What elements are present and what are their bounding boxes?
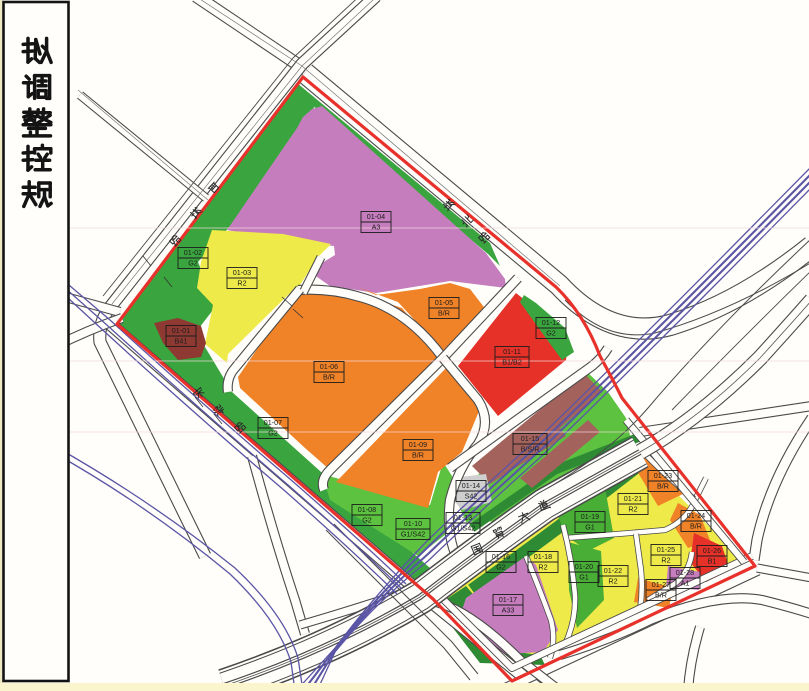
svg-text:01-14: 01-14: [462, 481, 480, 490]
svg-text:01-12: 01-12: [542, 318, 560, 327]
svg-text:B/R: B/R: [690, 522, 702, 531]
svg-text:G2: G2: [268, 429, 278, 438]
svg-text:B/R: B/R: [655, 591, 667, 600]
svg-text:01-17: 01-17: [499, 595, 517, 604]
svg-text:01-01: 01-01: [172, 326, 190, 335]
svg-text:01-07: 01-07: [264, 418, 282, 427]
svg-text:G2: G2: [188, 259, 198, 268]
svg-text:01-22: 01-22: [604, 566, 622, 575]
svg-text:01-02: 01-02: [184, 248, 202, 257]
svg-text:01-15: 01-15: [521, 434, 539, 443]
svg-text:01-19: 01-19: [581, 512, 599, 521]
svg-text:B1/B2: B1/B2: [502, 358, 522, 367]
svg-text:B/R: B/R: [323, 373, 335, 382]
svg-text:01-25: 01-25: [657, 545, 675, 554]
svg-text:01-08: 01-08: [358, 505, 376, 514]
svg-text:01-27: 01-27: [652, 580, 670, 589]
svg-text:01-04: 01-04: [367, 212, 385, 221]
svg-text:01-20: 01-20: [575, 562, 593, 571]
svg-text:01-28: 01-28: [676, 568, 694, 577]
svg-text:R2: R2: [538, 563, 547, 572]
svg-text:01-11: 01-11: [503, 347, 521, 356]
svg-text:G1/S42: G1/S42: [401, 530, 425, 539]
svg-text:B/R: B/R: [412, 451, 424, 460]
svg-text:B/S/R: B/S/R: [521, 445, 540, 454]
svg-text:G1/S42: G1/S42: [451, 524, 475, 533]
svg-text:01-18: 01-18: [534, 552, 552, 561]
svg-text:G2: G2: [546, 329, 556, 338]
svg-text:G2: G2: [362, 516, 372, 525]
svg-text:R2: R2: [628, 505, 637, 514]
svg-text:A3: A3: [372, 223, 381, 232]
svg-text:G1: G1: [585, 523, 595, 532]
svg-text:B41: B41: [175, 337, 188, 346]
svg-text:01-26: 01-26: [703, 546, 721, 555]
svg-text:B1: B1: [708, 557, 717, 566]
svg-text:G2: G2: [496, 563, 506, 572]
svg-text:01-13: 01-13: [454, 513, 472, 522]
svg-text:01-09: 01-09: [409, 440, 427, 449]
svg-text:G1: G1: [579, 573, 589, 582]
svg-text:01-03: 01-03: [233, 268, 251, 277]
svg-text:01-21: 01-21: [624, 494, 642, 503]
svg-text:R2: R2: [237, 279, 246, 288]
svg-text:01-24: 01-24: [687, 511, 705, 520]
svg-text:R2: R2: [608, 577, 617, 586]
svg-text:S42: S42: [465, 492, 478, 501]
svg-text:01-23: 01-23: [654, 471, 672, 480]
svg-text:01-05: 01-05: [435, 298, 453, 307]
svg-text:01-10: 01-10: [404, 519, 422, 528]
svg-text:A33: A33: [502, 606, 515, 615]
svg-text:A1: A1: [681, 579, 690, 588]
svg-text:01-16: 01-16: [492, 552, 510, 561]
svg-text:R2: R2: [661, 556, 670, 565]
svg-text:01-06: 01-06: [320, 362, 338, 371]
svg-text:B/R: B/R: [657, 482, 669, 491]
svg-text:B/R: B/R: [438, 309, 450, 318]
